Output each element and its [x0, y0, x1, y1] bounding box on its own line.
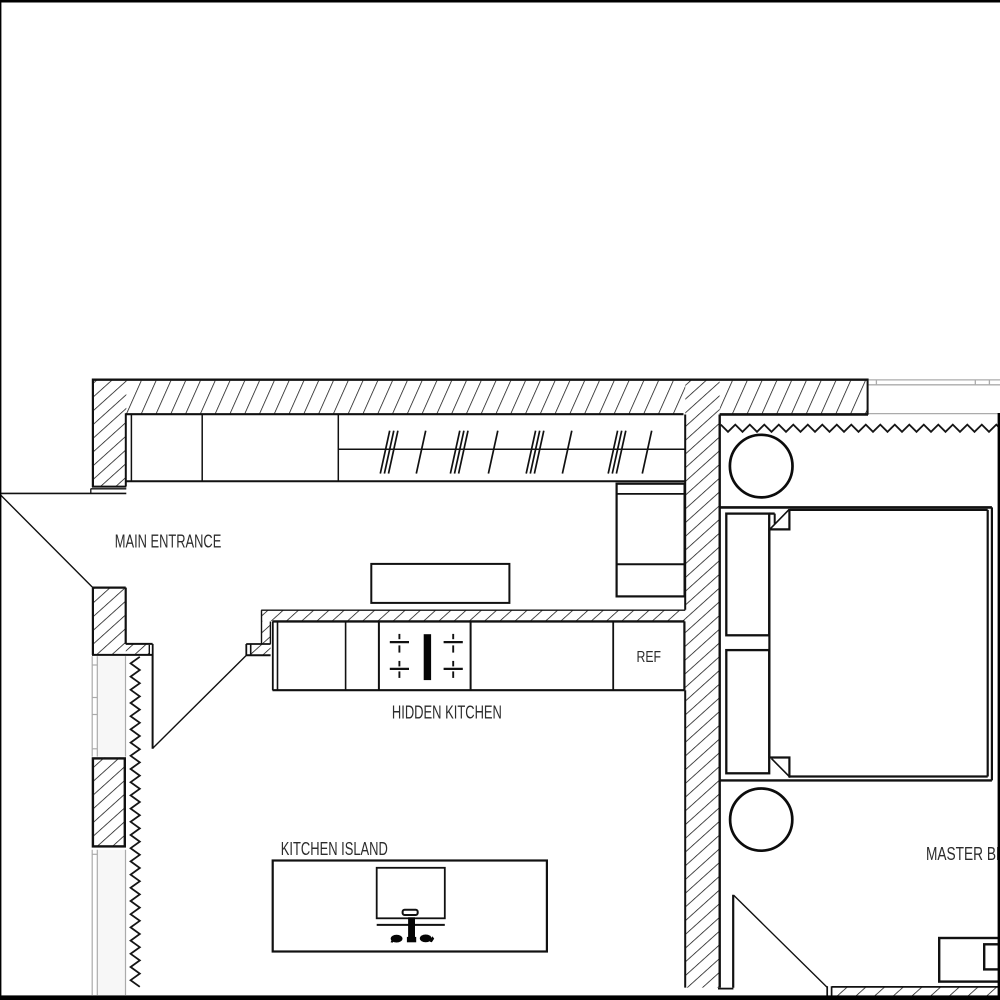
- svg-text:KITCHEN ISLAND: KITCHEN ISLAND: [281, 838, 388, 859]
- svg-text:REF: REF: [637, 649, 662, 666]
- svg-text:MAIN ENTRANCE: MAIN ENTRANCE: [115, 531, 222, 552]
- svg-text:MASTER BEDROOM: MASTER BEDROOM: [926, 843, 1000, 864]
- svg-text:HIDDEN KITCHEN: HIDDEN KITCHEN: [392, 701, 502, 722]
